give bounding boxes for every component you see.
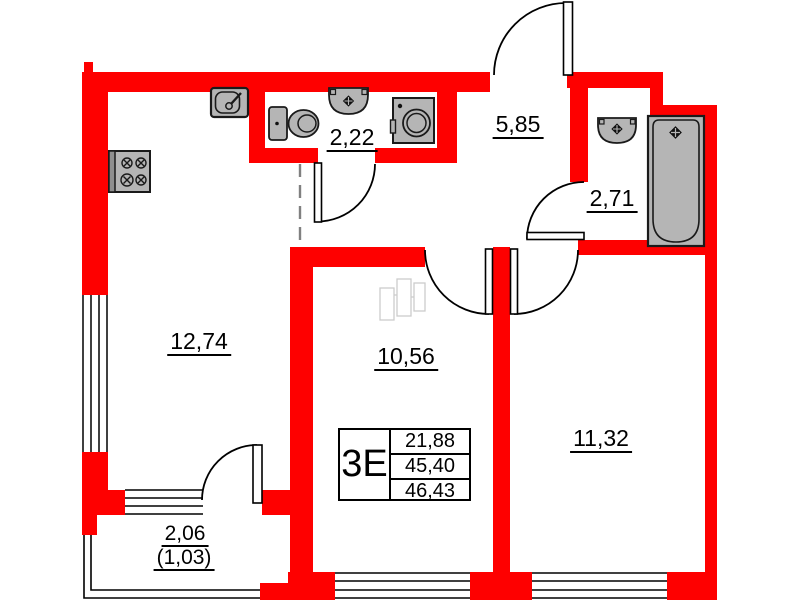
floor-plan-drawing [0, 0, 800, 600]
floor-plan: 12,74 5,85 2,22 2,71 10,56 11,32 2,06 (1… [0, 0, 800, 600]
stove-icon [109, 151, 150, 192]
wall-segment [107, 490, 125, 515]
wall-segment [288, 572, 335, 600]
room-label-hallway: 5,85 [493, 113, 544, 139]
room-label-kitchen-living: 12,74 [167, 330, 231, 356]
room-label-wc: 2,22 [327, 126, 378, 152]
wall-segment [705, 117, 717, 577]
bathtub-icon [648, 116, 704, 246]
spec-value-row: 45,40 [391, 455, 469, 480]
wall-segment [298, 247, 425, 267]
wall-segment [470, 572, 532, 600]
wall-segment [667, 572, 717, 600]
washing-machine-icon [391, 98, 435, 143]
wall-segment [290, 247, 313, 572]
room-label-bathroom: 2,71 [587, 187, 638, 213]
wall-segment [260, 583, 288, 600]
unit-type-label: 3Е [340, 430, 391, 499]
bath-basin-icon [598, 118, 636, 143]
wall-segment [249, 148, 318, 163]
wc-basin-icon [329, 88, 368, 114]
wall-segment [82, 515, 97, 535]
wall-segment [493, 247, 510, 572]
wall-segment [437, 72, 457, 163]
unit-spec-table: 3Е 21,88 45,40 46,43 [338, 428, 471, 501]
room-label-room-1: 10,56 [374, 345, 438, 371]
spec-value-row: 21,88 [391, 430, 469, 455]
room-label-balcony: 2,06 [162, 523, 209, 547]
room-label-balcony-reduced: (1,03) [154, 547, 215, 571]
wall-segment [82, 72, 108, 295]
wall-segment [570, 72, 588, 182]
spec-value-row: 46,43 [391, 480, 469, 503]
wall-segment [82, 452, 108, 515]
room-label-room-2: 11,32 [570, 427, 632, 453]
kitchen-sink-icon [211, 88, 248, 117]
wall-segment [82, 72, 490, 92]
